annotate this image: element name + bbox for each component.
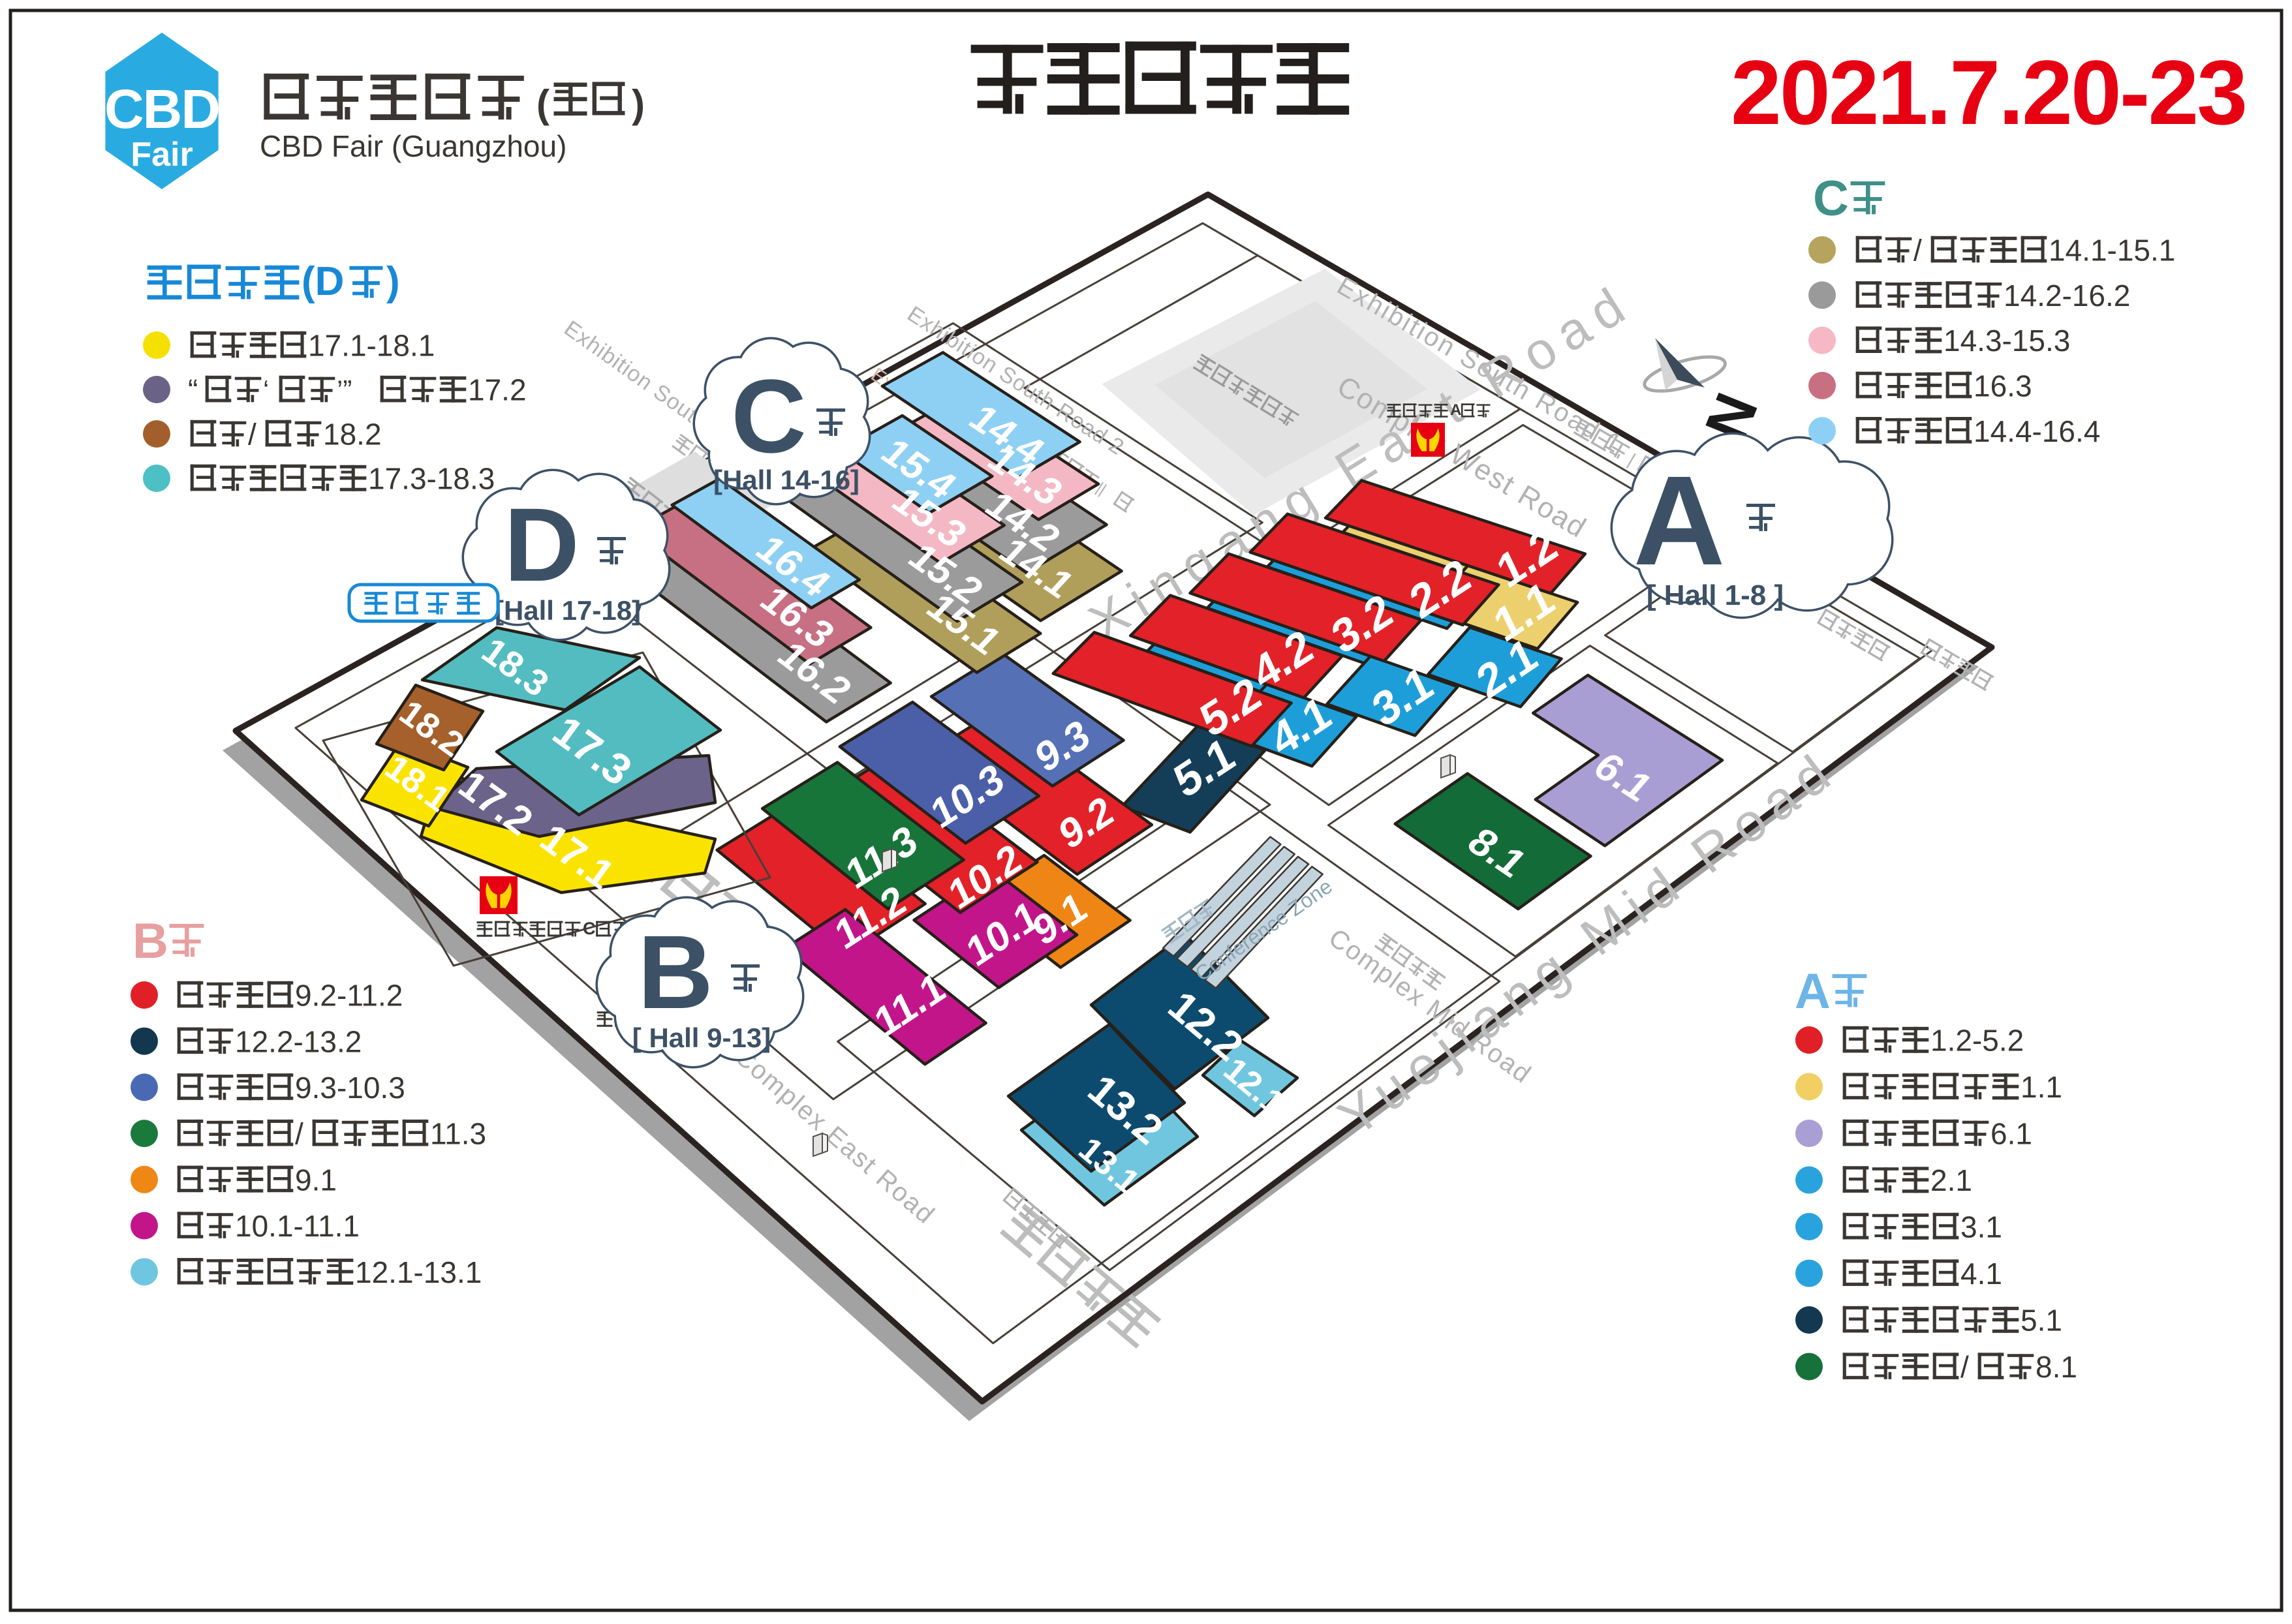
svg-text:Fair: Fair [131, 136, 193, 174]
svg-text:17.3-18.3: 17.3-18.3 [368, 462, 495, 496]
svg-text:14.3-15.3: 14.3-15.3 [1944, 324, 2070, 358]
svg-text:/: / [1960, 1350, 1969, 1384]
svg-text:16.3: 16.3 [1974, 369, 2032, 403]
svg-text:CBD Fair (Guangzhou): CBD Fair (Guangzhou) [260, 129, 566, 163]
svg-text:(D: (D [302, 259, 344, 304]
svg-text:3.1: 3.1 [1960, 1210, 2002, 1244]
svg-text:14.1-15.1: 14.1-15.1 [2049, 234, 2175, 268]
svg-text:2021.7.20-23: 2021.7.20-23 [1731, 41, 2246, 144]
svg-text:10.1-11.1: 10.1-11.1 [235, 1209, 360, 1243]
svg-text:1.1: 1.1 [2021, 1070, 2062, 1104]
svg-text:(: ( [536, 82, 550, 126]
svg-text:[ Hall 1-8 ]: [ Hall 1-8 ] [1647, 579, 1784, 611]
svg-text:D: D [504, 486, 580, 603]
svg-text:2.1: 2.1 [1930, 1163, 1972, 1197]
svg-text:C: C [731, 358, 807, 474]
svg-text:12.2-13.2: 12.2-13.2 [235, 1024, 362, 1058]
svg-text:/: / [1913, 234, 1922, 268]
svg-text:): ) [632, 82, 645, 126]
svg-text:A: A [1450, 401, 1461, 419]
svg-text:8.1: 8.1 [2036, 1350, 2077, 1384]
svg-text:C: C [583, 919, 596, 938]
svg-text:CBD: CBD [104, 78, 219, 140]
svg-text:): ) [386, 259, 400, 304]
svg-text:14.4-16.4: 14.4-16.4 [1974, 414, 2100, 448]
svg-text:/: / [248, 418, 256, 452]
svg-text:18.2: 18.2 [323, 418, 382, 452]
svg-text:‘: ‘ [263, 375, 269, 405]
svg-text:A: A [1634, 450, 1726, 592]
svg-text:[ Hall 9-13]: [ Hall 9-13] [632, 1022, 771, 1053]
svg-text:B: B [638, 913, 713, 1030]
svg-text:[Hall 14-16]: [Hall 14-16] [713, 465, 859, 495]
svg-text:B: B [132, 913, 168, 969]
svg-text:5.1: 5.1 [2021, 1304, 2062, 1338]
svg-text:’”: ’” [337, 375, 352, 405]
svg-text:6.1: 6.1 [1990, 1117, 2032, 1151]
svg-text:/: / [295, 1117, 303, 1151]
svg-text:“: “ [188, 373, 198, 407]
svg-text:1.2-5.2: 1.2-5.2 [1930, 1024, 2024, 1058]
svg-text:9.3-10.3: 9.3-10.3 [295, 1071, 405, 1105]
svg-text:9.2-11.2: 9.2-11.2 [295, 979, 403, 1013]
svg-text:12.1-13.1: 12.1-13.1 [355, 1255, 482, 1289]
svg-text:C: C [1813, 171, 1849, 226]
svg-text:17.1-18.1: 17.1-18.1 [308, 329, 435, 363]
svg-text:17.2: 17.2 [468, 373, 527, 407]
svg-text:4.1: 4.1 [1960, 1257, 2002, 1291]
svg-text:11.3: 11.3 [430, 1117, 486, 1151]
svg-text:[Hall 17-18]: [Hall 17-18] [495, 595, 641, 626]
svg-text:9.1: 9.1 [295, 1163, 337, 1197]
svg-text:14.2-16.2: 14.2-16.2 [2004, 279, 2130, 313]
svg-text:A: A [1795, 964, 1831, 1019]
